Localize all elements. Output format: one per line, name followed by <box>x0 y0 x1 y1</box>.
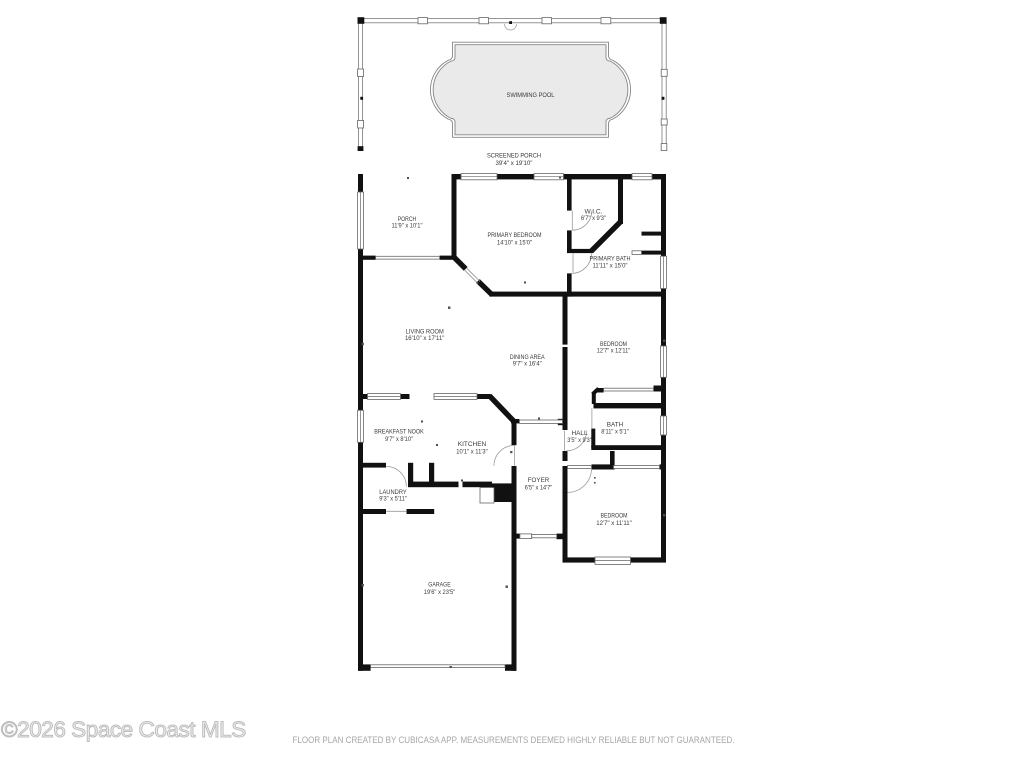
svg-text:6'7" x 9'3": 6'7" x 9'3" <box>581 215 606 222</box>
svg-text:SCREENED PORCH: SCREENED PORCH <box>487 153 541 160</box>
svg-text:DINING AREA: DINING AREA <box>510 354 545 361</box>
svg-text:16'10" x 17'11": 16'10" x 17'11" <box>405 335 445 342</box>
svg-text:LIVING ROOM: LIVING ROOM <box>406 328 444 335</box>
svg-text:PORCH: PORCH <box>398 216 417 223</box>
svg-text:©2026 Space Coast MLS: ©2026 Space Coast MLS <box>1 717 246 742</box>
svg-text:14'10" x 15'0": 14'10" x 15'0" <box>497 240 532 247</box>
svg-text:11'11" x 15'0": 11'11" x 15'0" <box>593 263 628 270</box>
svg-text:6'5" x 14'7": 6'5" x 14'7" <box>525 484 553 491</box>
svg-text:SWIMMING POOL: SWIMMING POOL <box>507 92 555 99</box>
svg-text:3'5" x 9'3": 3'5" x 9'3" <box>567 437 592 444</box>
svg-text:BREAKFAST NOOK: BREAKFAST NOOK <box>374 429 424 436</box>
svg-text:9'7" x 16'4": 9'7" x 16'4" <box>513 361 542 368</box>
svg-text:12'7" x 12'11": 12'7" x 12'11" <box>597 348 631 355</box>
svg-text:8'11" x 5'1": 8'11" x 5'1" <box>601 429 629 436</box>
svg-text:12'7" x 11'11": 12'7" x 11'11" <box>596 520 632 527</box>
svg-text:GARAGE: GARAGE <box>428 582 451 589</box>
svg-text:10'1" x 11'3": 10'1" x 11'3" <box>456 449 488 456</box>
svg-text:W.I.C.: W.I.C. <box>585 208 603 215</box>
svg-text:FLOOR PLAN CREATED BY CUBICASA: FLOOR PLAN CREATED BY CUBICASA APP. MEAS… <box>293 735 735 746</box>
svg-text:9'7" x 8'10": 9'7" x 8'10" <box>385 436 413 443</box>
svg-text:19'6" x 23'5": 19'6" x 23'5" <box>424 589 456 596</box>
svg-text:FOYER: FOYER <box>528 477 550 484</box>
svg-text:HALL: HALL <box>572 430 588 437</box>
svg-text:LAUNDRY: LAUNDRY <box>379 489 407 496</box>
svg-text:BEDROOM: BEDROOM <box>601 512 628 519</box>
svg-text:39'4" x 19'10": 39'4" x 19'10" <box>496 160 533 167</box>
svg-text:PRIMARY BATH: PRIMARY BATH <box>590 256 631 263</box>
svg-text:9'3" x 5'11": 9'3" x 5'11" <box>379 496 407 503</box>
svg-text:BATH: BATH <box>607 422 624 429</box>
svg-text:11'9" x 10'1": 11'9" x 10'1" <box>392 223 423 230</box>
svg-text:KITCHEN: KITCHEN <box>458 441 487 448</box>
svg-text:BEDROOM: BEDROOM <box>600 341 627 348</box>
svg-text:PRIMARY BEDROOM: PRIMARY BEDROOM <box>488 232 542 239</box>
